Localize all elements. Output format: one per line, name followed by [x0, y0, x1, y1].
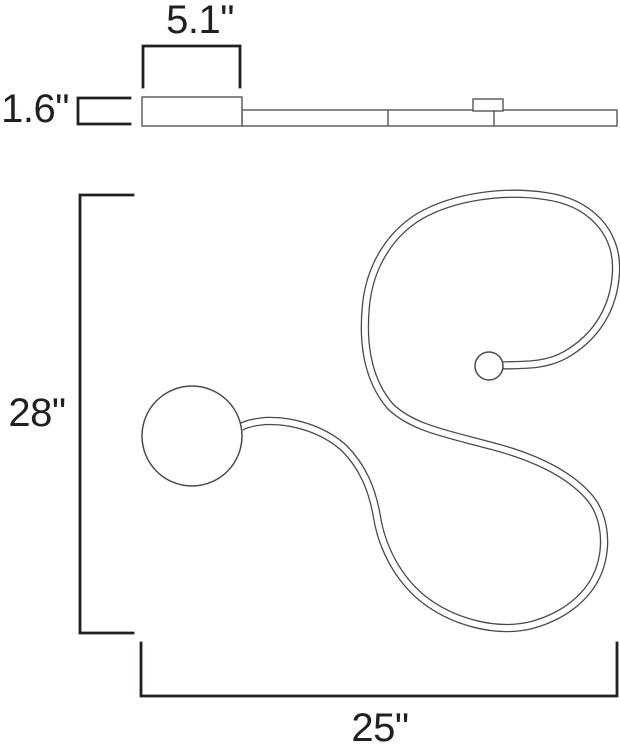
profile-height-label: 1.6"	[1, 87, 69, 131]
s-arm-tube-fill	[241, 194, 616, 628]
side-profile-view: 5.1" 1.6"	[1, 0, 617, 131]
width-bracket	[141, 643, 617, 696]
height-label: 28"	[8, 391, 65, 435]
fixture-profile-bar	[242, 110, 617, 126]
mounting-bump-rect	[473, 99, 503, 111]
fixture-dimension-drawing: 5.1" 1.6" 28" 25"	[0, 0, 620, 750]
canopy-width-bracket	[143, 46, 240, 87]
large-globe	[142, 386, 242, 486]
canopy-width-label: 5.1"	[166, 0, 234, 42]
canopy-profile-rect	[142, 97, 242, 126]
front-view: 28" 25"	[8, 194, 617, 750]
s-arm-tube-outline	[241, 194, 616, 628]
dimension-drawing-page: 5.1" 1.6" 28" 25"	[0, 0, 620, 750]
small-globe	[475, 352, 503, 380]
width-label: 25"	[351, 706, 408, 750]
profile-height-bracket	[78, 98, 130, 124]
height-bracket	[80, 195, 133, 633]
